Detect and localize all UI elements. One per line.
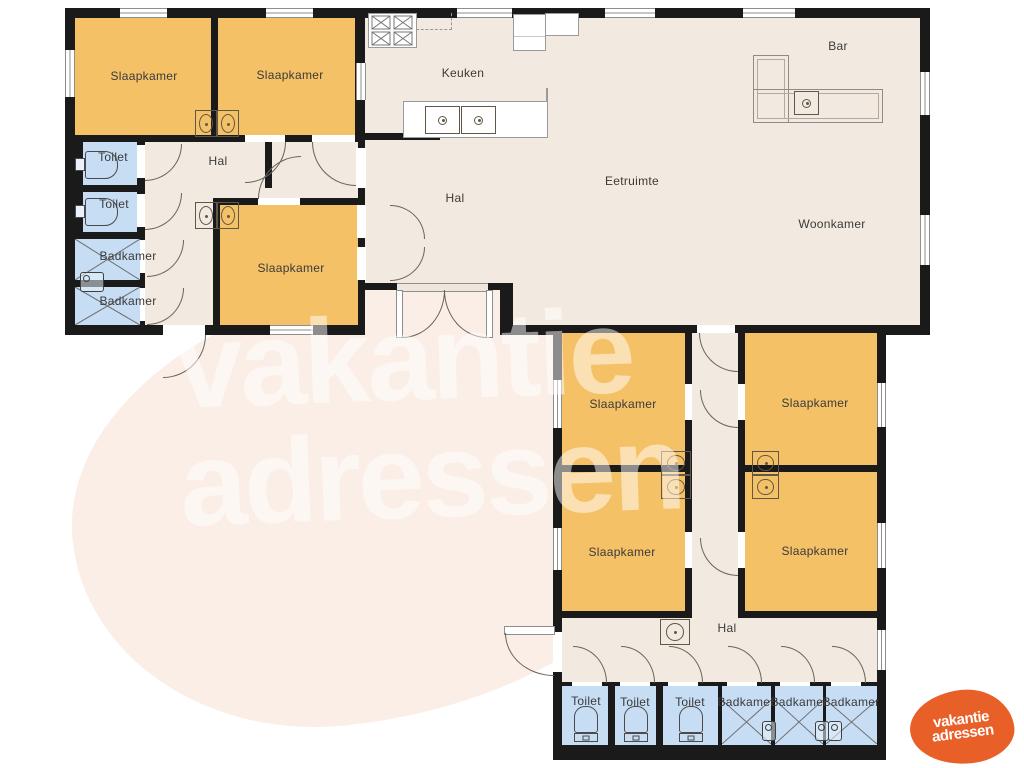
sink-hal-south bbox=[660, 619, 690, 645]
island-sink-right bbox=[461, 106, 496, 134]
label-toilet-s3: Toilet bbox=[675, 695, 705, 709]
counter-dashed bbox=[416, 13, 452, 30]
vakantieadressen-logo: vakantie adressen bbox=[910, 690, 1014, 764]
window-swing-west-1 bbox=[553, 380, 562, 428]
door-gap-hal-south-exterior bbox=[553, 632, 562, 672]
window-top-1 bbox=[120, 8, 167, 18]
window-swing-west-2 bbox=[553, 528, 562, 570]
sink-hal-west bbox=[195, 202, 217, 229]
label-slaapkamer-nw: Slaapkamer bbox=[110, 69, 177, 83]
window-right-1 bbox=[920, 72, 930, 115]
label-toilet-s1: Toilet bbox=[571, 694, 601, 708]
door-gap-slaapkamer-w-b bbox=[357, 247, 366, 280]
entrance-door-leaf-right bbox=[486, 290, 493, 338]
sink-slaapkamer-s1 bbox=[661, 451, 691, 475]
label-badkamer-w2: Badkamer bbox=[99, 294, 156, 308]
label-toilet-w1: Toilet bbox=[98, 150, 128, 164]
window-left-1 bbox=[65, 50, 75, 97]
door-gap-toilet-w1 bbox=[137, 145, 145, 178]
toilet-icon-w1-cistern bbox=[75, 158, 85, 171]
door-gap-s2 bbox=[738, 384, 745, 420]
label-badkamer-s3: Badkamer bbox=[822, 695, 879, 709]
label-slaapkamer-ne: Slaapkamer bbox=[256, 68, 323, 82]
toilet-icon-s1-bowl bbox=[574, 706, 598, 733]
window-swing-east-3 bbox=[877, 630, 886, 670]
label-hal-mid: Hal bbox=[446, 191, 465, 205]
label-toilet-s2: Toilet bbox=[620, 695, 650, 709]
window-kitchen-west bbox=[356, 63, 366, 100]
toilet-icon-s2-foot bbox=[624, 733, 648, 742]
sink-slaapkamer-nw bbox=[195, 110, 217, 137]
door-gap-slaapkamer-nw bbox=[245, 135, 285, 142]
toilet-icon-s1-foot bbox=[574, 733, 598, 742]
bath-icon-s3 bbox=[828, 721, 842, 741]
bath-icon-s2 bbox=[815, 721, 829, 741]
sink-slaapkamer-s3 bbox=[661, 475, 691, 499]
door-gap-vestibule bbox=[258, 198, 300, 205]
label-keuken: Keuken bbox=[442, 66, 485, 80]
door-gap-hal-west-exterior bbox=[163, 325, 205, 335]
door-gap-s3 bbox=[685, 532, 692, 568]
window-top-2 bbox=[266, 8, 313, 18]
toilet-icon-s3-foot bbox=[679, 733, 703, 742]
kitchen-partition bbox=[546, 88, 548, 102]
label-badkamer-s2: Badkamer bbox=[770, 695, 827, 709]
sink-slaapkamer-ne bbox=[217, 110, 239, 137]
window-top-3 bbox=[457, 8, 512, 18]
label-hal-south: Hal bbox=[718, 621, 737, 635]
stove-icon bbox=[368, 13, 417, 48]
logo-text: vakantie adressen bbox=[906, 684, 1018, 768]
window-top-4 bbox=[605, 8, 655, 18]
kitchen-counter-right bbox=[513, 14, 546, 51]
door-gap-corridor-top bbox=[697, 325, 735, 333]
sink-slaapkamer-w bbox=[217, 202, 239, 229]
pass-gap-hal-west bbox=[356, 148, 366, 188]
island-sink-left bbox=[425, 106, 460, 134]
door-gap-s4 bbox=[738, 532, 745, 568]
label-slaapkamer-s4: Slaapkamer bbox=[781, 544, 848, 558]
label-slaapkamer-s2: Slaapkamer bbox=[781, 396, 848, 410]
door-gap-slaapkamer-ne bbox=[312, 135, 355, 142]
label-badkamer-s1: Badkamer bbox=[717, 695, 774, 709]
toilet-icon-s3-bowl bbox=[679, 706, 703, 733]
label-woonkamer: Woonkamer bbox=[798, 217, 865, 231]
door-gap-slaapkamer-w-a bbox=[357, 205, 366, 238]
toilet-icon-w2-cistern bbox=[75, 205, 85, 218]
window-swing-east-1 bbox=[877, 383, 886, 427]
sink-slaapkamer-s4 bbox=[752, 475, 779, 499]
label-slaapkamer-s3: Slaapkamer bbox=[588, 545, 655, 559]
bath-icon-west bbox=[80, 272, 104, 292]
label-slaapkamer-s1: Slaapkamer bbox=[589, 397, 656, 411]
window-bottom-slaapkamer-w bbox=[270, 325, 313, 335]
bar-sink bbox=[794, 91, 819, 115]
toilet-icon-s2-bowl bbox=[624, 706, 648, 733]
label-hal-west: Hal bbox=[209, 154, 228, 168]
kitchen-cabinet bbox=[545, 13, 579, 36]
window-top-5 bbox=[743, 8, 795, 18]
window-right-2 bbox=[920, 215, 930, 265]
floor-living-area bbox=[365, 18, 920, 283]
label-eetruimte: Eetruimte bbox=[605, 174, 659, 188]
door-gap-s1 bbox=[685, 384, 692, 420]
floorplan: Slaapkamer Slaapkamer Toilet Toilet Badk… bbox=[0, 0, 1024, 768]
label-toilet-w2: Toilet bbox=[99, 197, 129, 211]
label-bar: Bar bbox=[828, 39, 848, 53]
door-gap-toilet-w2 bbox=[137, 194, 145, 227]
floor-living-area-lower bbox=[513, 283, 920, 325]
bath-icon-s1 bbox=[762, 721, 776, 741]
label-slaapkamer-w: Slaapkamer bbox=[257, 261, 324, 275]
label-badkamer-w1: Badkamer bbox=[99, 249, 156, 263]
window-swing-east-2 bbox=[877, 523, 886, 568]
sink-slaapkamer-s2 bbox=[752, 451, 779, 475]
